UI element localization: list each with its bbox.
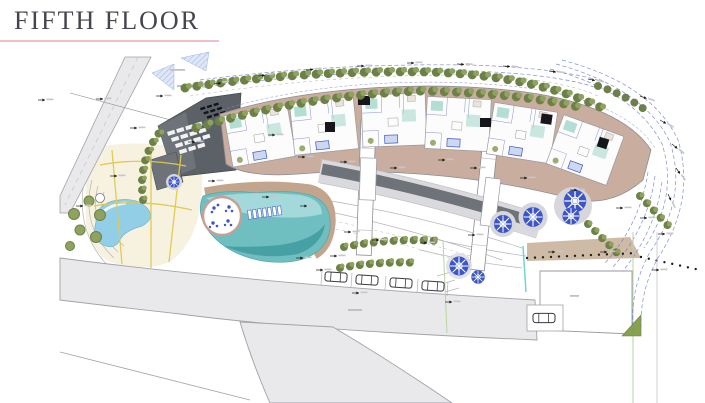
pool-area (200, 187, 330, 262)
pool-island (203, 197, 241, 235)
slide: FIFTH FLOOR (0, 0, 705, 403)
bottom-road (60, 258, 537, 403)
site-plan (0, 0, 705, 403)
street-label (348, 309, 362, 311)
plot-boundary (527, 271, 641, 336)
parked-car (533, 313, 555, 322)
